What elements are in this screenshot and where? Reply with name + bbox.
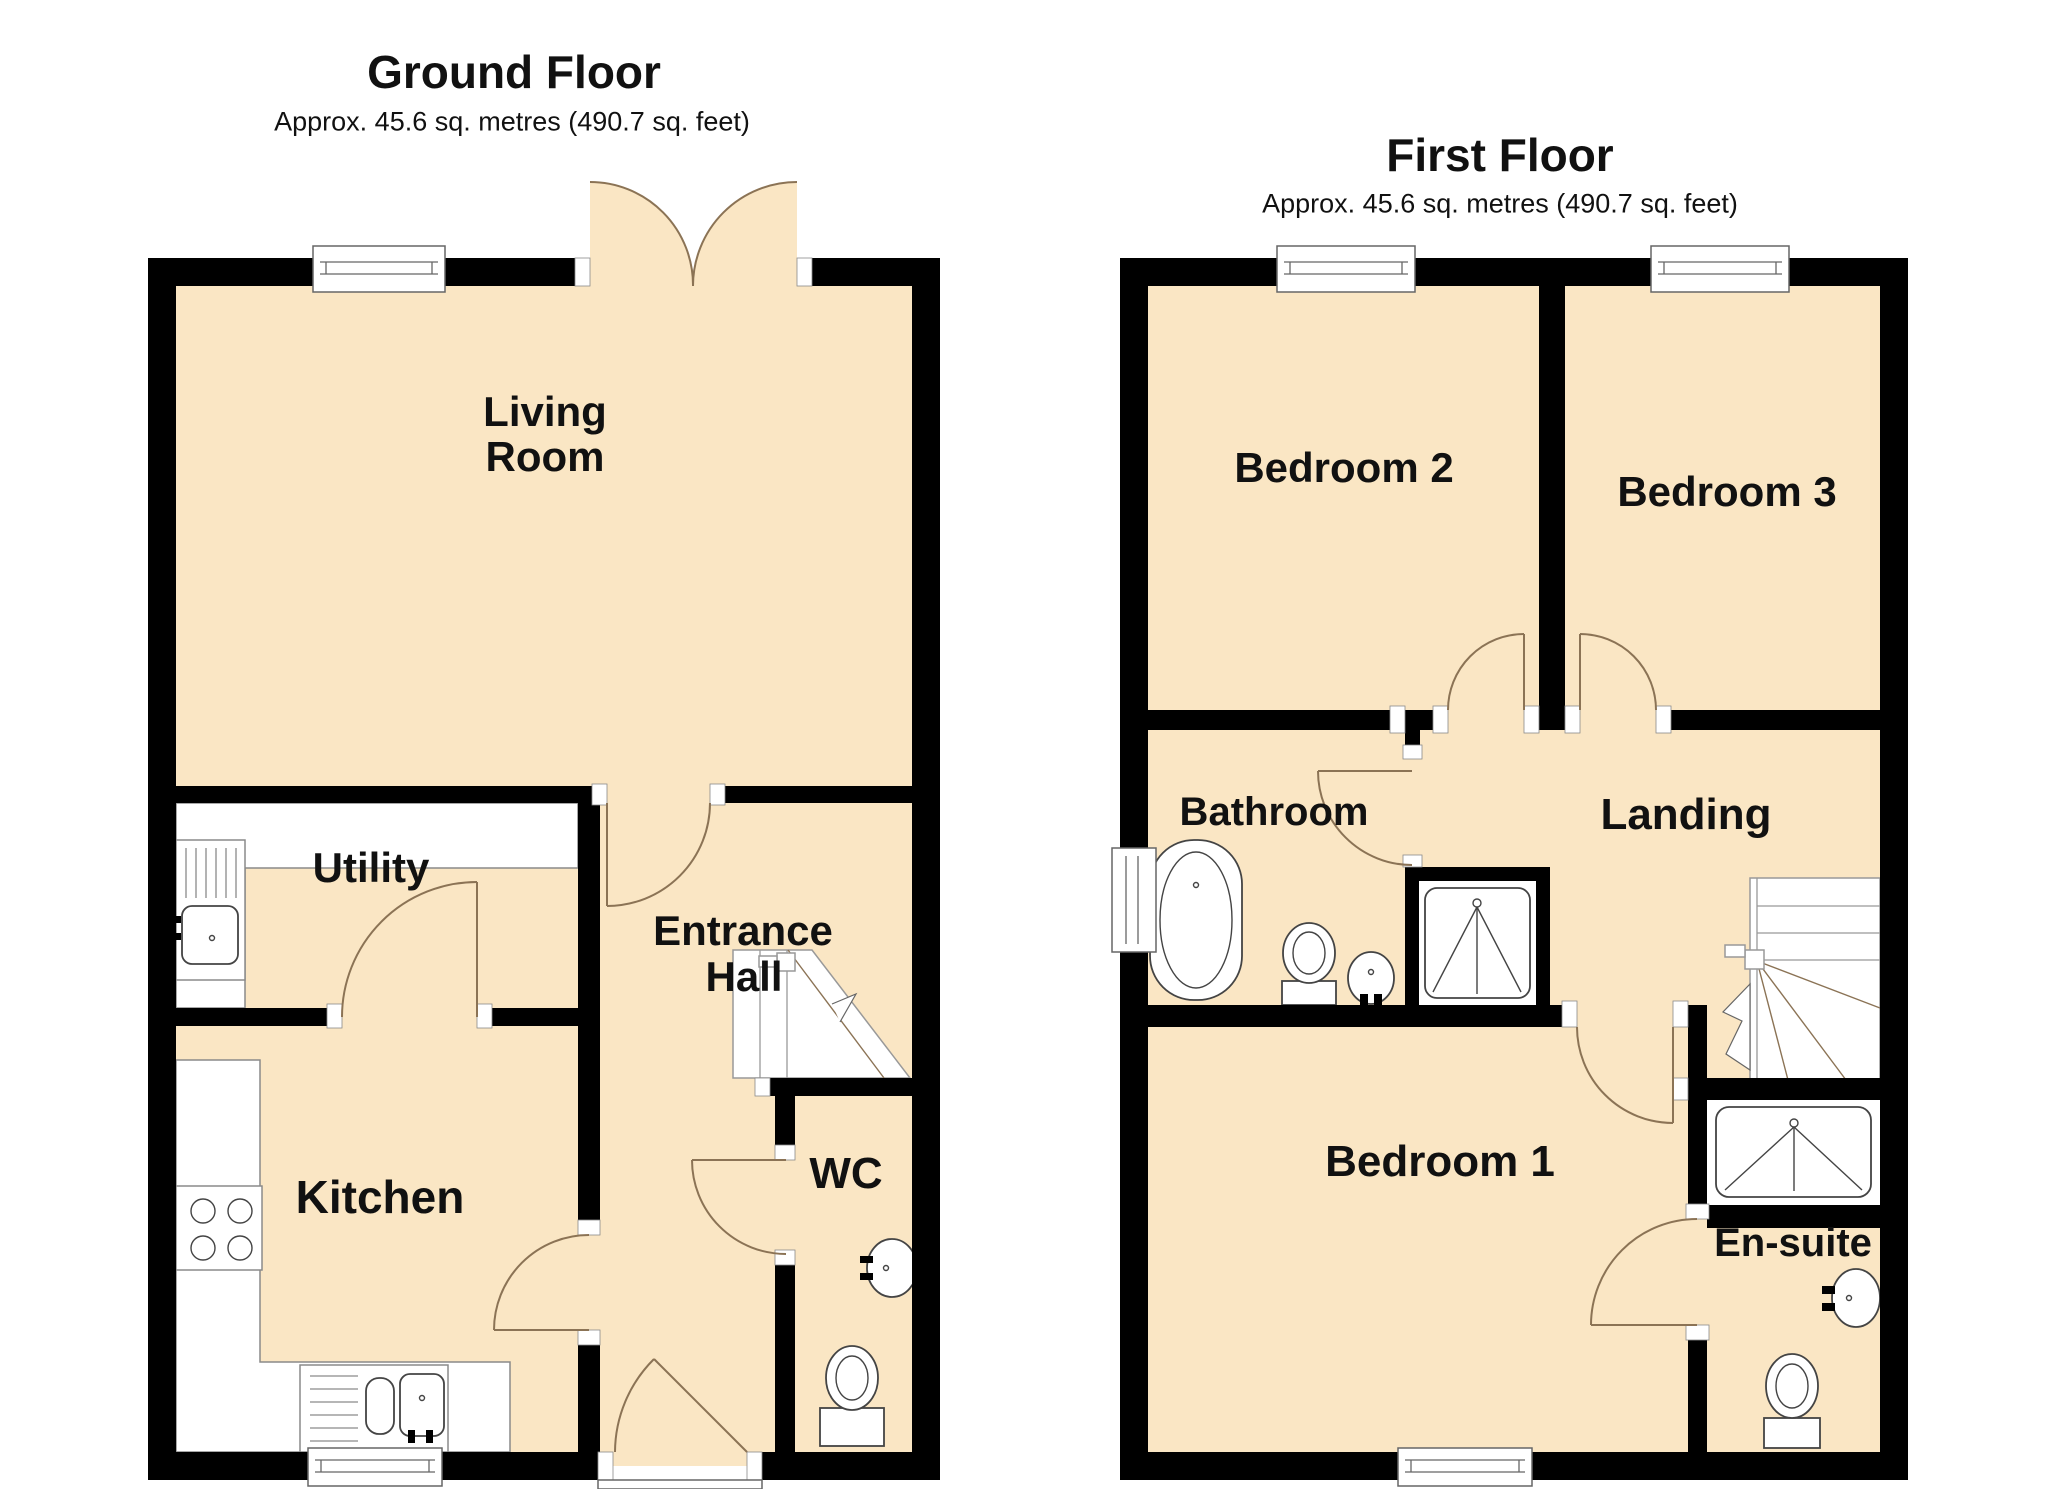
hob-icon xyxy=(176,1186,262,1270)
room-label-utility: Utility xyxy=(313,847,430,889)
bedroom1-window-icon xyxy=(1398,1448,1532,1486)
bathroom-toilet-icon xyxy=(1282,923,1336,1005)
bathroom-window-icon xyxy=(1112,848,1156,952)
wc-toilet-icon xyxy=(820,1346,884,1446)
first-floor-plan xyxy=(1112,246,1908,1486)
shower-icon xyxy=(1405,867,1550,1005)
room-label-entrance-hall-line2: Hall xyxy=(705,956,782,998)
utility-sink-icon xyxy=(168,840,245,980)
room-label-living-room-line1: Living xyxy=(483,391,607,433)
floorplan-graphics xyxy=(0,0,2048,1489)
ground-floor-subtitle: Approx. 45.6 sq. metres (490.7 sq. feet) xyxy=(274,109,750,136)
ground-floor-plan xyxy=(148,182,940,1489)
ensuite-shower-icon xyxy=(1707,1100,1880,1228)
bedroom2-window-icon xyxy=(1277,246,1415,292)
room-label-bathroom: Bathroom xyxy=(1180,792,1369,832)
ground-floor-title: Ground Floor xyxy=(367,49,661,95)
room-label-en-suite: En-suite xyxy=(1714,1223,1872,1263)
room-label-bedroom-3: Bedroom 3 xyxy=(1617,471,1836,513)
first-floor-subtitle: Approx. 45.6 sq. metres (490.7 sq. feet) xyxy=(1262,191,1738,218)
ensuite-toilet-icon xyxy=(1764,1354,1820,1448)
room-label-kitchen: Kitchen xyxy=(296,1174,465,1220)
room-label-entrance-hall-line1: Entrance xyxy=(653,910,833,952)
first-floor-title: First Floor xyxy=(1386,132,1613,178)
bedroom3-window-icon xyxy=(1651,246,1789,292)
room-label-bedroom-1: Bedroom 1 xyxy=(1325,1140,1555,1184)
living-room-window-icon xyxy=(313,246,445,292)
bath-icon xyxy=(1142,840,1242,1000)
kitchen-window-icon xyxy=(308,1448,442,1486)
room-label-landing: Landing xyxy=(1600,793,1771,837)
room-label-wc: WC xyxy=(809,1152,882,1196)
room-label-living-room-line2: Room xyxy=(486,436,605,478)
floorplan-canvas: Ground Floor Approx. 45.6 sq. metres (49… xyxy=(0,0,2048,1489)
kitchen-sink-icon xyxy=(300,1365,448,1452)
french-doors-icon xyxy=(590,182,797,286)
room-label-bedroom-2: Bedroom 2 xyxy=(1234,447,1453,489)
